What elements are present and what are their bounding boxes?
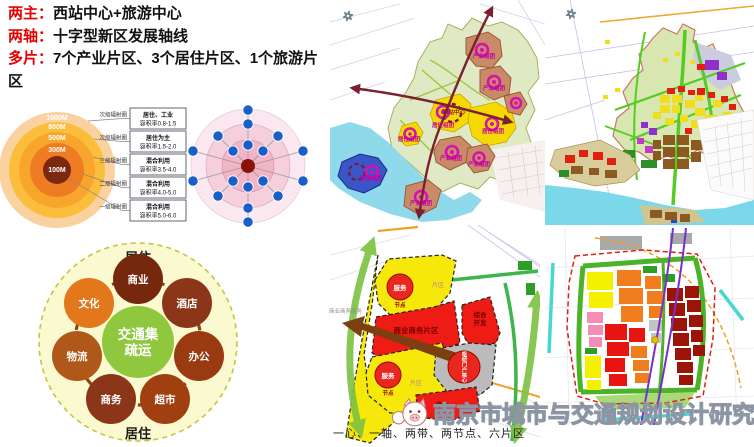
hub-label: 枢纽门户核心 [461, 350, 467, 384]
comp-dev-label-2: 开发 [474, 318, 488, 327]
far-box-1-use: 居住、工业 [143, 111, 173, 119]
callout-3: 三级辐射圈 [99, 157, 127, 165]
far-box-2-use: 居住为主 [146, 134, 170, 142]
node-supermarket-label: 超市 [154, 393, 176, 406]
far-box-5-far: 容积率5.0-6.0 [140, 212, 177, 220]
station-center-label: 西站中心 [443, 108, 466, 116]
residential-label-bottom: 居住 [125, 426, 151, 441]
watermark-text: 南京市城市与交通规划设计研究院 [433, 395, 754, 429]
watermark: 南京市城市与交通规划设计研究院 [391, 395, 754, 429]
node-logistics-label: 物流 [67, 350, 88, 363]
ring-label-500m: 500M [48, 135, 66, 142]
node-office-label: 办公 [189, 350, 210, 363]
transport-hub-functions-diagram: 居住 居住 商业 酒店 办公 超市 商务 物流 文化 交通集 疏运 [30, 238, 245, 447]
far-box-4-far: 容积率4.0-5.0 [140, 189, 177, 197]
residential-label-1: 居住组团 [432, 121, 455, 129]
node-culture-label: 文化 [78, 297, 100, 310]
headline-3-desc: 7个产业片区、3个居住片区、1个旅游片区 [8, 50, 318, 90]
headline-block: 两主：西站中心+旅游中心 两轴：十字型新区发展轴线 多片：7个产业片区、3个居住… [8, 3, 330, 93]
headline-2-term: 两轴： [8, 28, 53, 45]
far-boxes: 居住、工业 容积率0.8-1.5 居住为主 容积率1.5-2.0 混合利用 容积… [130, 108, 186, 221]
far-box-5-use: 混合利用 [146, 203, 170, 211]
interchange-dot [652, 337, 658, 343]
headline-1-term: 两主： [8, 5, 53, 22]
ring-label-1000m: 1000M [46, 115, 68, 122]
far-box-4-use: 混合利用 [146, 180, 170, 188]
hub-center-line2: 疏运 [125, 342, 152, 358]
map-structure-plan: 产业组团 产业组团 产业组团 产业组团 产业组团 居住组团 居住组团 居住组团 … [330, 0, 545, 225]
far-box-1-far: 容积率0.8-1.5 [140, 120, 177, 128]
industry-label-3: 产业组团 [440, 154, 463, 162]
business-zone-label: 商业商务片区 [394, 325, 439, 335]
green-block-1 [518, 261, 532, 270]
comp-dev-label-1: 综合 [474, 310, 488, 319]
far-box-3-use: 混合利用 [146, 157, 170, 165]
headline-3-term: 多片： [8, 50, 53, 67]
headline-1: 两主：西站中心+旅游中心 [8, 3, 330, 26]
service-node-north-sub: 节点 [394, 301, 406, 309]
green-block-2 [526, 283, 535, 295]
node-business-label: 商业 [128, 273, 149, 286]
zone-south-hint: 片区 [410, 379, 422, 387]
callout-4: 二级辐射圈 [99, 180, 127, 188]
far-box-3-far: 容积率3.5-4.0 [140, 166, 177, 174]
callout-5: 一级辐射圈 [99, 203, 127, 211]
center-station-node [241, 159, 255, 173]
headline-3: 多片：7个产业片区、3个居住片区、1个旅游片区 [8, 48, 330, 93]
ring-label-100m: 100M [48, 167, 66, 174]
headline-1-desc: 西站中心+旅游中心 [53, 5, 182, 22]
far-box-2-far: 容积率1.5-2.0 [140, 143, 177, 151]
industry-label-5: 产业组团 [410, 199, 433, 207]
slide: 两主：西站中心+旅游中心 两轴：十字型新区发展轴线 多片：7个产业片区、3个居住… [0, 0, 754, 447]
station-node-diagram [186, 98, 316, 238]
service-node-north-label: 服务 [394, 283, 408, 292]
pig-logo-icon [391, 395, 429, 429]
blue-block [671, 220, 677, 223]
service-node-south-label: 服务 [382, 371, 396, 380]
map-landuse-plan [545, 0, 754, 225]
pink-blocks [587, 312, 603, 347]
radiation-rings-diagram: 1000M 800M 500M 300M 100M 次级辐射圈 次级辐射圈 三级… [0, 100, 195, 235]
zone-north-hint: 片区 [432, 281, 444, 289]
hub-center-line1: 交通集 [118, 326, 159, 342]
node-hotel-label: 酒店 [177, 297, 198, 310]
residential-label-3: 居住组团 [398, 135, 421, 143]
callout-2: 次级辐射圈 [99, 134, 127, 142]
ring-label-800m: 800M [48, 124, 66, 131]
hub-center-circle [102, 306, 174, 378]
headline-2-desc: 十字型新区发展轴线 [53, 28, 188, 45]
industry-label-4: 产业组团 [468, 160, 491, 168]
tourism-label: 旅游组团 [359, 174, 383, 182]
node-commerce-label: 商务 [101, 393, 122, 406]
headline-2: 两轴：十字型新区发展轴线 [8, 26, 330, 49]
residential-label-2: 居住组团 [482, 127, 505, 135]
industry-label-1: 产业组团 [473, 52, 496, 60]
clipped-left-note: 商业商务服务 [329, 307, 362, 315]
ring-label-300m: 300M [48, 147, 66, 154]
industry-label-2: 产业组团 [483, 84, 506, 92]
callout-1: 次级辐射圈 [99, 111, 127, 119]
